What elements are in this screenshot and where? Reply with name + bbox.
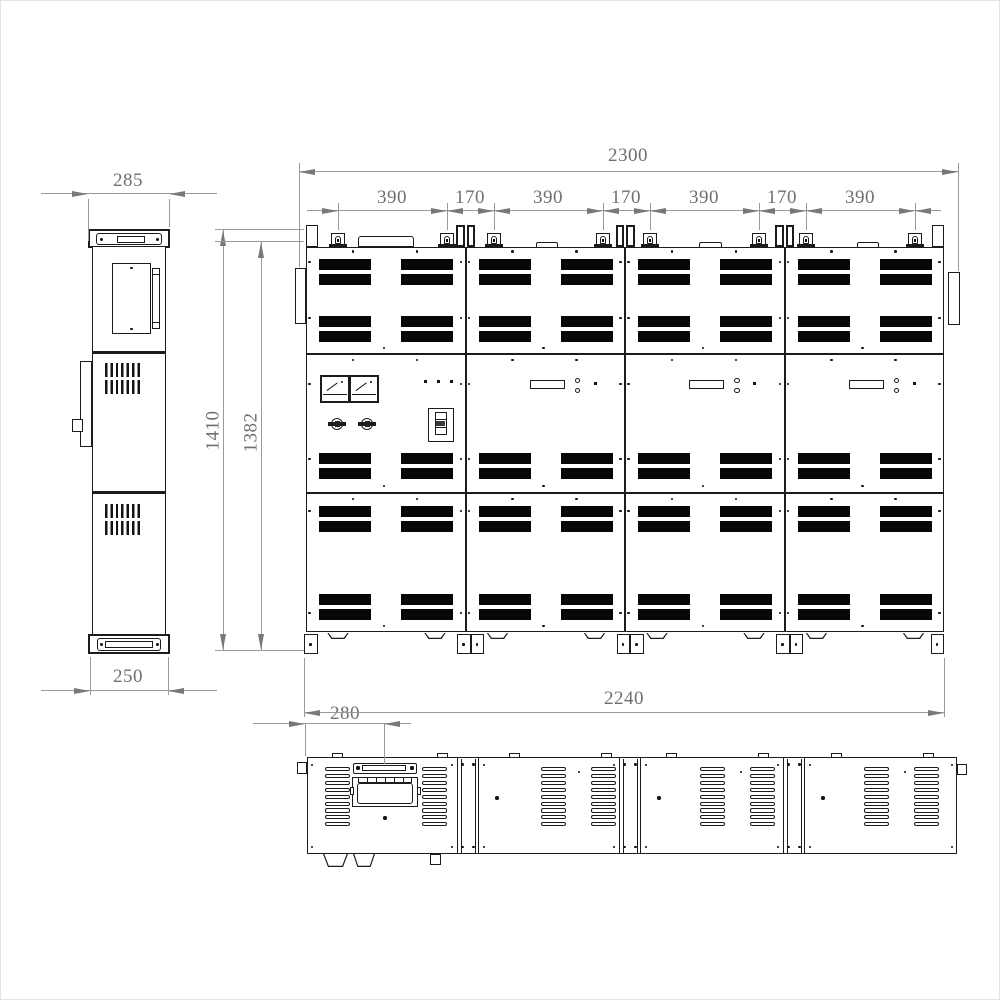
dim-arrowhead-icon xyxy=(220,230,226,246)
dim-label-chain-5: 390 xyxy=(679,188,729,207)
dim-arrowhead-icon xyxy=(258,634,264,650)
dim-line xyxy=(215,241,304,242)
dim-arrowhead-icon xyxy=(168,688,184,694)
dim-arrowhead-icon xyxy=(289,721,305,727)
dim-arrowhead-icon xyxy=(759,208,775,214)
dim-arrowhead-icon xyxy=(790,208,806,214)
dim-line xyxy=(223,230,224,650)
dim-arrowhead-icon xyxy=(650,208,666,214)
dim-line xyxy=(41,193,217,194)
dim-arrowhead-icon xyxy=(634,208,650,214)
dim-arrowhead-icon xyxy=(806,208,822,214)
dim-label-chain-4: 170 xyxy=(601,188,651,207)
dim-arrowhead-icon xyxy=(915,208,931,214)
dim-arrowhead-icon xyxy=(478,208,494,214)
dim-label-chain-2: 170 xyxy=(445,188,495,207)
dim-arrowhead-icon xyxy=(494,208,510,214)
dim-arrowhead-icon xyxy=(220,634,226,650)
dim-label-chain-7: 390 xyxy=(835,188,885,207)
dim-arrowhead-icon xyxy=(942,169,958,175)
dim-arrowhead-icon xyxy=(431,208,447,214)
dim-label-side-top-width: 285 xyxy=(88,171,168,190)
dim-line xyxy=(215,650,304,651)
dim-line xyxy=(168,657,169,695)
dim-arrowhead-icon xyxy=(603,208,619,214)
dim-line xyxy=(90,657,91,695)
dim-label-chain-6: 170 xyxy=(757,188,807,207)
dim-line xyxy=(944,658,945,717)
dim-line xyxy=(215,229,304,230)
dim-line xyxy=(169,199,170,227)
dim-arrowhead-icon xyxy=(447,208,463,214)
dim-line xyxy=(41,690,217,691)
dim-arrowhead-icon xyxy=(743,208,759,214)
dim-arrowhead-icon xyxy=(74,688,90,694)
dim-arrowhead-icon xyxy=(899,208,915,214)
dim-label-front-base-width: 2240 xyxy=(574,689,674,708)
dim-line xyxy=(958,163,959,271)
dim-arrowhead-icon xyxy=(384,721,400,727)
dim-arrowhead-icon xyxy=(72,191,88,197)
dim-arrowhead-icon xyxy=(587,208,603,214)
dim-arrowhead-icon xyxy=(304,710,320,716)
dim-arrowhead-icon xyxy=(169,191,185,197)
dim-label-front-height-outer: 1410 xyxy=(204,391,223,471)
dim-label-chain-3: 390 xyxy=(523,188,573,207)
dimension-layer: 285 2300 390 170 390 170 390 170 390 141… xyxy=(1,1,999,999)
dim-line xyxy=(304,712,944,713)
dim-arrowhead-icon xyxy=(299,169,315,175)
dim-arrowhead-icon xyxy=(258,242,264,258)
dim-line xyxy=(299,163,300,267)
dim-line xyxy=(305,724,306,756)
dim-line xyxy=(299,171,958,172)
dim-line xyxy=(304,658,305,717)
dim-line xyxy=(261,242,262,650)
three-view-technical-drawing: 285 2300 390 170 390 170 390 170 390 141… xyxy=(0,0,1000,1000)
dim-arrowhead-icon xyxy=(928,710,944,716)
dim-line xyxy=(88,199,89,241)
dim-label-front-total-width: 2300 xyxy=(578,146,678,165)
dim-arrowhead-icon xyxy=(322,208,338,214)
dim-line xyxy=(307,210,941,211)
dim-line xyxy=(384,724,385,764)
dim-label-side-bottom-width: 250 xyxy=(88,667,168,686)
dim-label-chain-1: 390 xyxy=(367,188,417,207)
dim-label-front-height-inner: 1382 xyxy=(242,393,261,473)
